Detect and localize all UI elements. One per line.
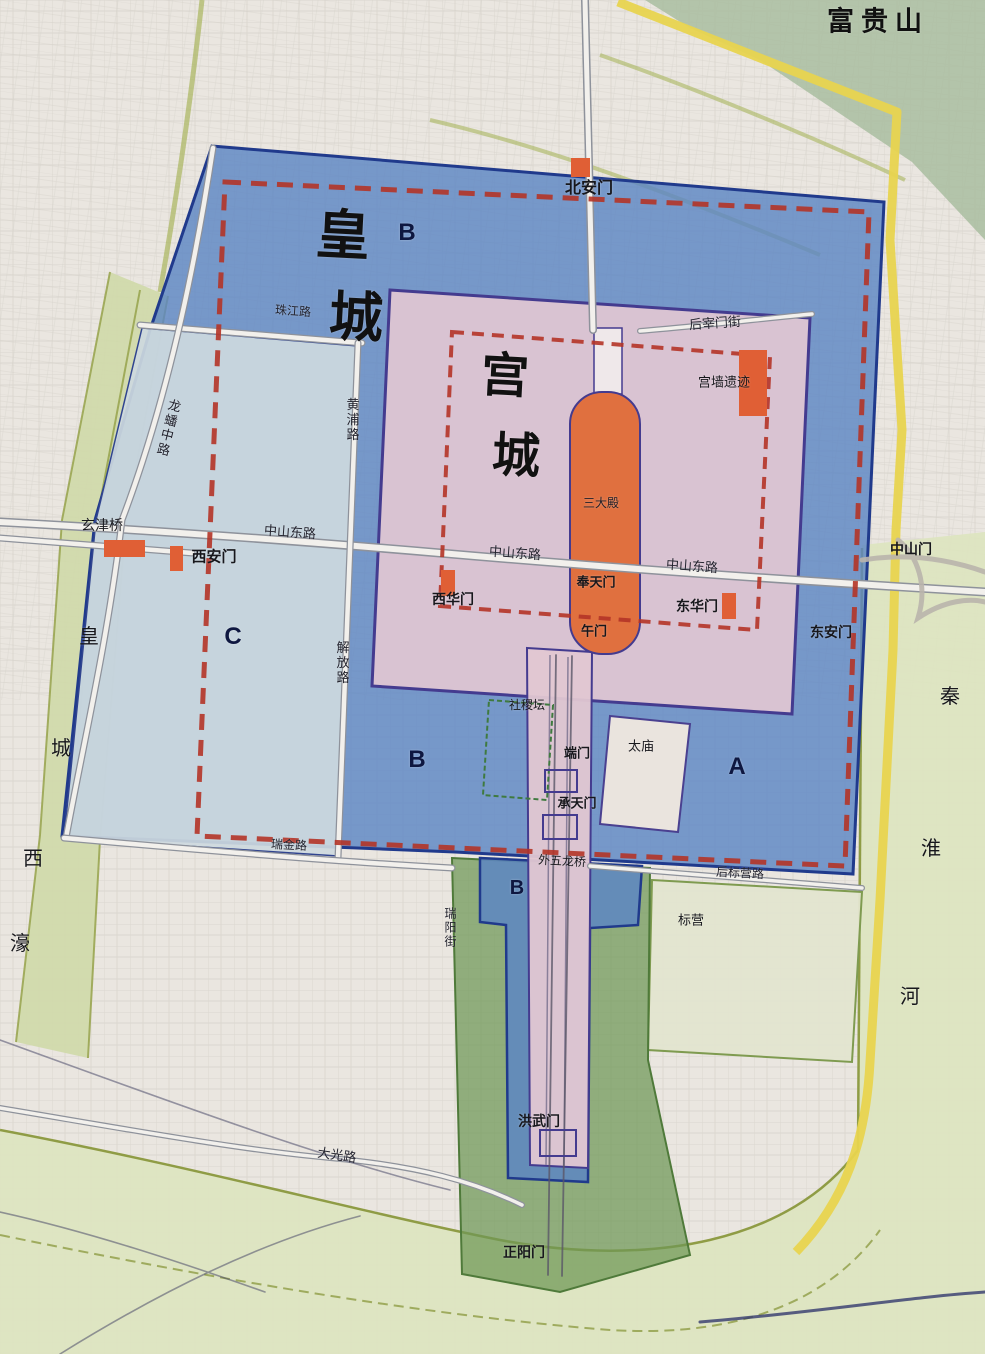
- label-xuanjin-bridge: 玄津桥: [81, 520, 123, 534]
- label-hongwu-gate: 洪武门: [518, 1116, 560, 1130]
- label-zhongshan-east-road-west: 中山东路: [264, 524, 317, 541]
- label-west-moat-char-3: 西: [23, 849, 43, 869]
- label-beianmen-gate: 北安门: [565, 181, 613, 197]
- axis-pink-corridor: [527, 648, 592, 1168]
- zone-letter-a: A: [728, 755, 745, 779]
- zone-letter-b-mid: B: [408, 748, 425, 772]
- donghuamen-marker: [722, 593, 736, 619]
- label-sheji-altar: 社稷坛: [509, 699, 545, 711]
- label-jiefang-road: 解放路: [336, 641, 349, 686]
- label-fengtian-gate: 奉天门: [576, 576, 615, 589]
- label-palace-city-char-1: 宫: [480, 352, 530, 402]
- label-wu-gate: 午门: [581, 625, 607, 638]
- label-huangpu-road: 黄浦路: [346, 398, 359, 443]
- label-zhongshan-gate: 中山门: [890, 544, 932, 558]
- zone-letter-b-north: B: [398, 221, 415, 245]
- label-xian-gate: 西安门: [191, 551, 236, 566]
- label-zhujiang-road: 珠江路: [275, 304, 312, 318]
- label-three-great-halls: 三大殿: [583, 497, 619, 509]
- label-zhongshan-east-road-mid: 中山东路: [489, 545, 542, 562]
- label-dongan-gate: 东安门: [810, 627, 852, 641]
- xianmen-marker: [170, 546, 183, 571]
- label-houbiaoying-road: 后标营路: [716, 866, 765, 880]
- map-canvas: [0, 0, 985, 1354]
- label-imperial-city-char-2: 城: [328, 290, 385, 347]
- label-taimiao: 太庙: [628, 740, 654, 753]
- zone-letter-c: C: [224, 625, 241, 649]
- label-west-moat-char-2: 城: [51, 739, 71, 759]
- beianmen-marker: [571, 158, 590, 177]
- label-imperial-city-char-1: 皇: [315, 208, 372, 265]
- label-biaoying: 标营: [678, 914, 704, 927]
- label-chengtian-gate: 承天门: [557, 797, 596, 810]
- ming-palace-zoning-map: 富贵山 北安门 皇 城 B 珠江路 黄浦路 龙蟠中路 玄津桥 西安门 中山东路 …: [0, 0, 985, 1354]
- label-donghua-gate: 东华门: [676, 601, 718, 615]
- label-palace-city-char-2: 城: [491, 432, 541, 482]
- label-ruijin-road: 瑞金路: [271, 838, 308, 852]
- label-xihua-gate: 西华门: [432, 594, 474, 608]
- label-west-moat-char-4: 濠: [10, 934, 30, 954]
- xuanjinqiao-marker: [104, 540, 145, 557]
- label-duan-gate: 端门: [564, 747, 590, 760]
- label-qinhuai-river-char-1: 秦: [940, 687, 960, 707]
- label-waiwulong-bridge: 外五龙桥: [538, 854, 587, 868]
- taimiao-block: [600, 716, 690, 832]
- label-qinhuai-river-char-3: 河: [900, 987, 920, 1007]
- label-houzaimen-street: 后宰门街: [689, 315, 742, 332]
- label-zhengyang-gate: 正阳门: [503, 1247, 545, 1261]
- north-axis-corridor: [594, 328, 622, 394]
- zone-letter-b-south: B: [510, 878, 524, 898]
- label-gongqiang-ruins: 宫墙遗迹: [698, 376, 750, 389]
- label-qinhuai-river-char-2: 淮: [921, 839, 941, 859]
- label-zhongshan-east-road-east: 中山东路: [666, 558, 719, 575]
- label-ruiyang-street: 瑞阳街: [444, 907, 456, 949]
- label-fuguishan: 富贵山: [827, 9, 929, 36]
- label-west-moat-char-1: 皇: [79, 627, 99, 647]
- biaoying-pale-block: [648, 880, 862, 1062]
